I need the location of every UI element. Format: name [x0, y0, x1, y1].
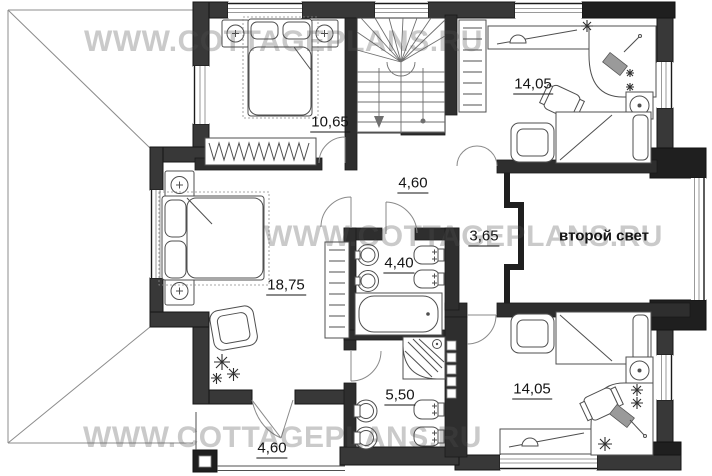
floor-plan-page: WWW.COTTAGEPLANS.RU WWW.COTTAGEPLANS.RU … [0, 0, 712, 476]
room-label-corridor: 3,65 [468, 228, 499, 247]
void-left-wall [507, 173, 521, 303]
room-label-bedroom-top: 10,65 [310, 114, 350, 133]
furniture-bedroom-top-right [459, 20, 656, 163]
room-label-shower-room: 5,50 [384, 387, 415, 406]
room-label-master-bedroom: 18,75 [266, 277, 306, 296]
room-label-double-height: второй свет [559, 228, 649, 245]
room-label-balcony: 4,60 [256, 440, 287, 459]
room-label-bedroom-top-right: 14,05 [513, 76, 553, 95]
room-label-hallway: 4,60 [397, 175, 428, 194]
furniture-master-bedroom [159, 171, 349, 384]
furniture-bedroom-top [205, 17, 338, 165]
room-label-bathroom: 4,40 [383, 255, 414, 274]
room-label-bedroom-bottom-right: 14,05 [512, 381, 552, 400]
stairs [357, 18, 445, 133]
